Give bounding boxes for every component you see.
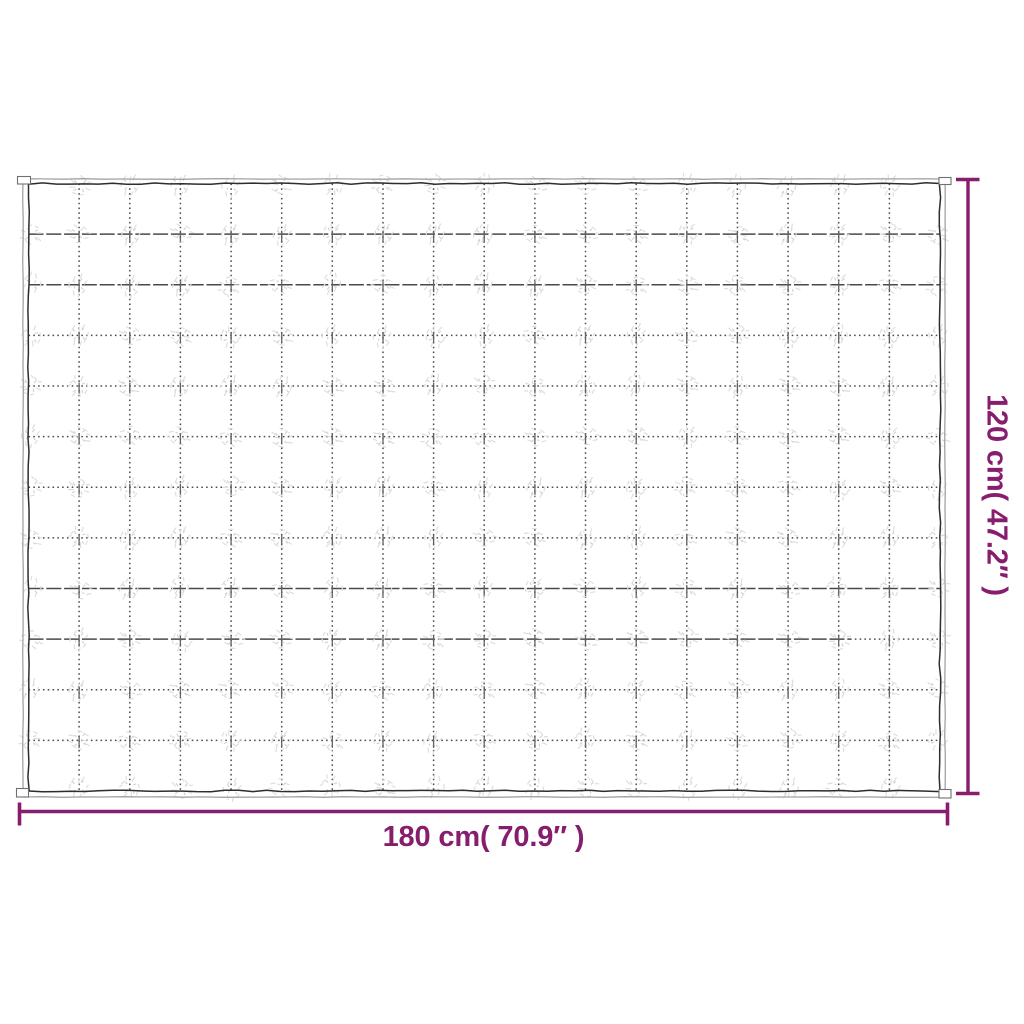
svg-text:120 cm( 47.2″ ): 120 cm( 47.2″ ) bbox=[981, 394, 1013, 596]
svg-text:180 cm( 70.9″ ): 180 cm( 70.9″ ) bbox=[383, 821, 585, 853]
